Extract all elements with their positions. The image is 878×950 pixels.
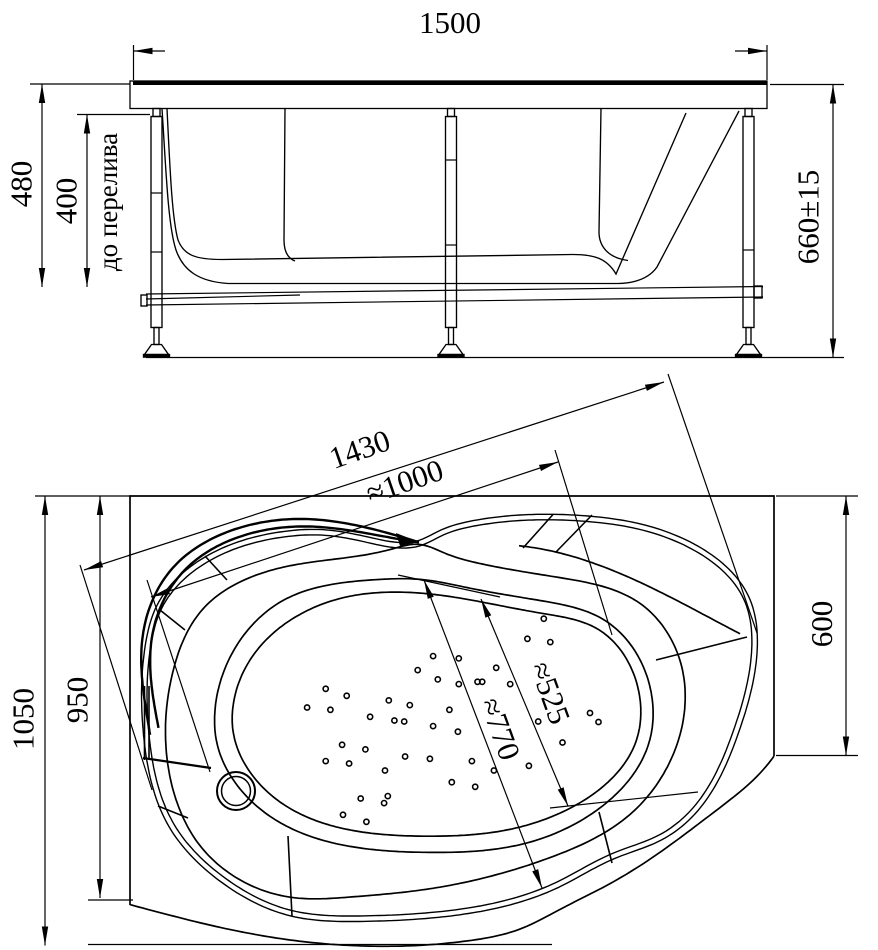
svg-text:480: 480 (4, 161, 39, 208)
svg-text:до перелива: до перелива (93, 133, 123, 271)
svg-text:660±15: 660±15 (791, 170, 826, 265)
svg-text:400: 400 (49, 178, 84, 225)
svg-text:1500: 1500 (419, 5, 481, 40)
svg-text:950: 950 (60, 677, 95, 724)
svg-text:600: 600 (804, 601, 839, 648)
svg-text:1050: 1050 (6, 688, 41, 750)
